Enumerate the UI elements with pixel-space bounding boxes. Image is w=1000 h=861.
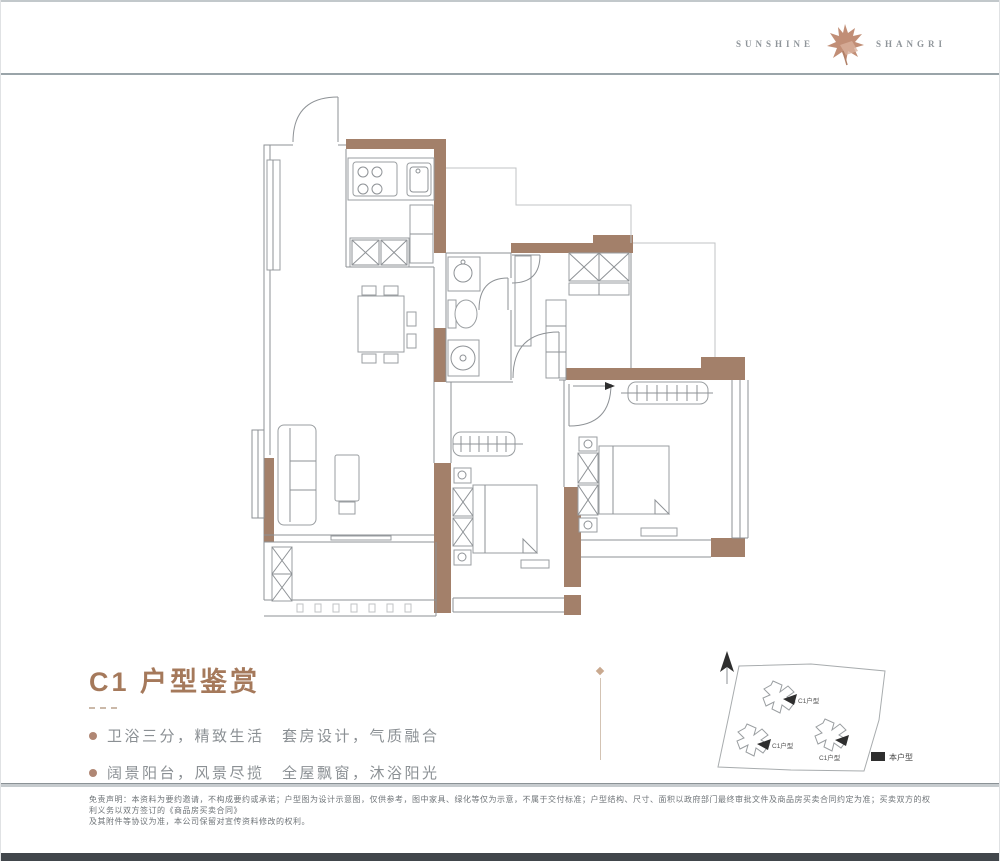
bay-window-left xyxy=(252,430,264,518)
footer-rule xyxy=(1,783,1000,787)
building-outline-2 xyxy=(737,724,771,756)
bedroom-master xyxy=(569,380,748,557)
kitchen xyxy=(346,158,434,267)
disclaimer-line-1: 免责声明：本资料为要约邀请，不构成要约或承诺；户型图为设计示意图，仅供参考，图中… xyxy=(89,794,937,816)
balcony xyxy=(264,542,436,616)
perimeter-walls xyxy=(264,145,434,600)
brand-left-text: SUNSHINE xyxy=(736,39,814,49)
bathroom xyxy=(446,253,513,382)
disclaimer-text: 免责声明：本资料为要约邀请，不构成要约或承诺；户型图为设计示意图，仅供参考，图中… xyxy=(89,794,937,827)
map-legend: 本户型 xyxy=(871,752,913,762)
feature-text-1: 卫浴三分，精致生活 套房设计，气质融合 xyxy=(107,725,440,746)
bullet-dot-icon xyxy=(89,769,97,777)
header-rule xyxy=(1,73,1000,75)
building-outline-3 xyxy=(815,719,849,751)
brand-logo: SUNSHINE SHANGRI xyxy=(701,18,981,70)
floorplan-poster-page: SUNSHINE SHANGRI xyxy=(0,0,1000,861)
bullet-dot-icon xyxy=(89,732,97,740)
feature-bullet-2: 阔景阳台，风景尽揽 全屋飘窗，沐浴阳光 xyxy=(89,762,569,783)
living-room xyxy=(264,425,434,542)
building-label-1: C1户型 xyxy=(798,696,820,705)
entry-door xyxy=(293,97,338,142)
site-location-map: C1户型 C1户型 C1户型 本户型 xyxy=(701,638,1000,788)
building-label-2: C1户型 xyxy=(772,741,794,750)
title-block: C1 户型鉴赏 卫浴三分，精致生活 套房设计，气质融合 阔景阳台，风景尽揽 全屋… xyxy=(89,660,569,783)
top-edge-line xyxy=(1,0,1000,2)
building-label-3: C1户型 xyxy=(819,753,841,762)
feature-text-2: 阔景阳台，风景尽揽 全屋飘窗，沐浴阳光 xyxy=(107,762,440,783)
vertical-divider xyxy=(600,678,601,760)
maple-leaf-icon xyxy=(822,21,868,67)
disclaimer-line-2: 及其附件等协议为准，本公司保留对宣传资料修改的权利。 xyxy=(89,816,937,827)
building-outline-1 xyxy=(763,681,797,713)
site-boundary xyxy=(718,664,885,771)
feature-bullet-1: 卫浴三分，精致生活 套房设计，气质融合 xyxy=(89,725,569,746)
north-arrow-icon xyxy=(720,651,734,684)
title-underline xyxy=(89,707,117,709)
dining-area xyxy=(358,286,416,363)
bedroom-small xyxy=(512,253,631,378)
floorplan-drawing xyxy=(251,85,756,630)
page-title: C1 户型鉴赏 xyxy=(89,660,569,699)
entry-cabinet xyxy=(267,160,280,270)
divider-diamond-icon xyxy=(596,667,604,675)
brand-right-text: SHANGRI xyxy=(876,39,946,49)
bottom-edge-bar xyxy=(1,853,1000,861)
legend-label: 本户型 xyxy=(889,752,913,762)
